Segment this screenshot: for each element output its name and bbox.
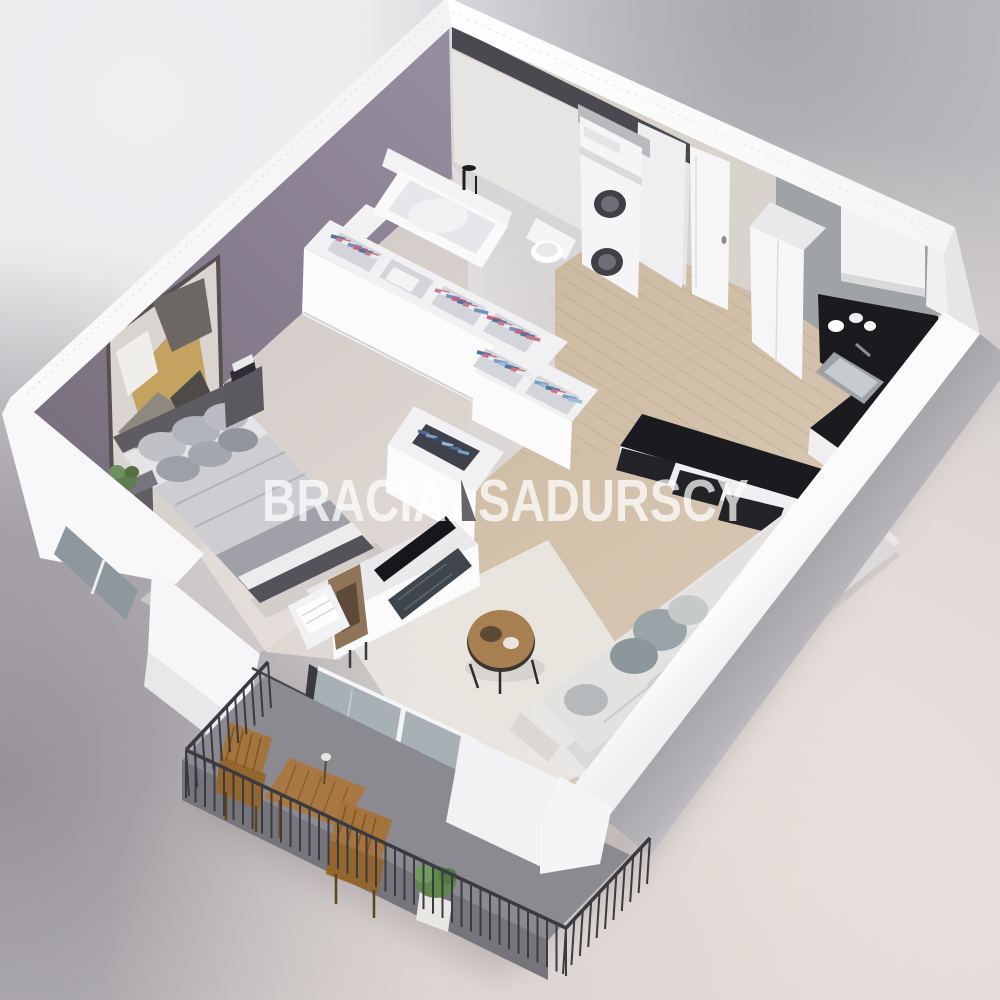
svg-text:SADURSCY: SADURSCY xyxy=(478,468,749,534)
svg-text:BRACIA: BRACIA xyxy=(262,468,447,534)
